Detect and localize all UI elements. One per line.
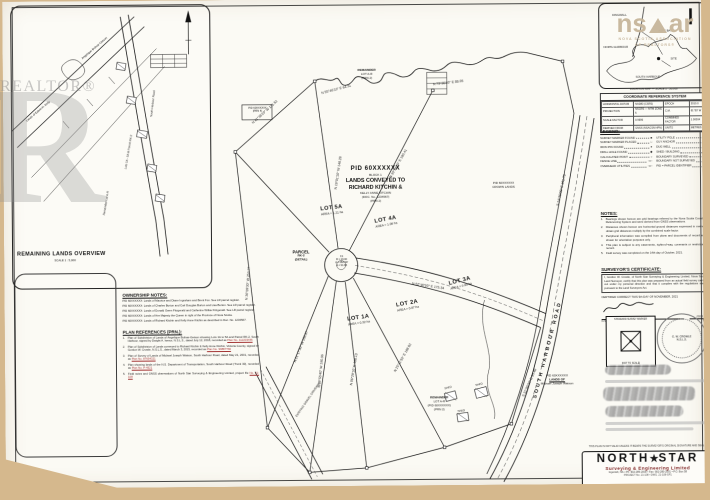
photo-background: REMAINING LANDS OVERVIEW SCALE 1 : 5,000… [0, 0, 710, 500]
crown-lands-label: PID 60XXXXXXCROWN LANDS [482, 182, 526, 190]
main-parcel-lines [235, 52, 577, 476]
ownership-note-item: PID 60XXXXXX: Lands of Richard Kitchin a… [123, 319, 259, 324]
company-name: NORTH★STAR [583, 452, 710, 466]
ownership-notes-list: PID 60XXXXXX: Lands of Maurice and Diane… [122, 298, 258, 324]
notes-title: NOTES: [601, 210, 709, 216]
location-map-drawing [606, 6, 697, 82]
plan-reference-item: 1.Plan of Subdivision of Lands of Angeli… [123, 335, 259, 343]
company-name-right: STAR [659, 452, 699, 464]
redacted-approval-stamp [605, 365, 671, 376]
redacted-approval-stamp [605, 405, 683, 417]
legend-box: LEGEND: SURVEY MARKER FOUND■ SURVEY MARK… [600, 128, 708, 169]
note-item: 4.This plan is subject to any easements,… [601, 243, 709, 251]
location-map-caption: LOCATION MAP — SCALE 1 : 50,000 [600, 86, 708, 91]
company-name-left: NORTH [597, 453, 650, 465]
remainder-lot-bottom-label: REMAINDERLOT A-R(PID 60XXXXXX)(PRN 2) [417, 396, 461, 412]
plan-reference-item: 5.Field notes and GNSS observations of N… [123, 371, 259, 379]
notes-list: 1.Bearings shown hereon are grid bearing… [601, 217, 709, 256]
note-item: 5.Field survey was completed on the 14th… [601, 252, 709, 257]
date-label: DATE [703, 319, 710, 322]
surveyor-seal: G. W. CROWLE N.S.L.S. [657, 313, 707, 363]
plan-reference-item: 3.Plan of Survey of Lands of Michael Jos… [123, 353, 259, 361]
inset-subtitle: SCALE 1 : 5,000 [17, 258, 113, 263]
culdesac-curve-data: C1R = 20.00Δ = 262°40'A = 91.63 [329, 255, 354, 268]
inset-map-lines [8, 10, 193, 257]
north-arrow-icon [185, 10, 191, 54]
plan-reference-item: 2.Plan of Subdivision of Lands conveyed … [123, 344, 259, 352]
note-item: 3.Peripheral information was compiled fr… [601, 234, 709, 242]
star-icon: ★ [650, 454, 659, 465]
seal-title: N.S.L.S. [677, 338, 687, 341]
title-block: NORTH★STAR Surveying & Engineering Limit… [582, 450, 710, 492]
legend-title: LEGEND: [600, 128, 708, 134]
coordinate-reference-box: COORDINATE REFERENCE SYSTEM HORIZONTAL D… [600, 92, 710, 133]
plan-reference-item: 4.Plan showing lands of the N.S. Departm… [123, 362, 259, 370]
project-number: PROJECT No. 21-108 • DWG. 21-108-SP1 [583, 473, 710, 477]
left-notes-block: OWNERSHIP NOTES: PID 60XXXXXX: Lands of … [122, 292, 259, 382]
certificate-title: SURVEYOR'S CERTIFICATE: [601, 266, 709, 272]
certificate-body: I, Gordon W. Crowle, of North Star Surve… [601, 273, 709, 293]
block-owner-label: PID 60XXXXXXBLOCK 1LANDS CONVEYED TORICH… [331, 164, 419, 203]
stamp-top-label: STANDARD SURVEY MARKER [614, 318, 647, 320]
certificate-box: SURVEYOR'S CERTIFICATE: I, Gordon W. Cro… [601, 266, 709, 322]
plan-references-list: 1.Plan of Subdivision of Lands of Angeli… [123, 335, 259, 380]
inset-title: REMAINING LANDS OVERVIEW [17, 251, 106, 258]
notes-box: NOTES: 1.Bearings shown hereon are grid … [601, 210, 709, 257]
monument-stamp: STANDARD SURVEY MARKER (NOT TO SCALE) [606, 316, 656, 367]
legend-item: PID = PARCEL IDENTIFIER [656, 163, 708, 168]
certificate-statement: CERTIFIED CORRECT THIS 9th DAY OF NOVEMB… [601, 294, 709, 299]
monument-icon [618, 329, 644, 353]
redacted-approval-stamp [603, 386, 695, 401]
legend-item: OVERHEAD UTILITIES–o– [600, 164, 652, 169]
monument-symbols [233, 60, 567, 474]
legend-column-1: SURVEY MARKER FOUND■ SURVEY MARKER PLACE… [600, 135, 652, 169]
signature-icon [601, 299, 657, 313]
legend-column-2: UTILITY POLE⊙ GUY ANCHOR↙ DUG WELL◉ SHED… [656, 135, 708, 169]
parcel-rk2-label: PARCELRK-2(DETAIL) [286, 249, 316, 262]
survey-plan-sheet: REMAINING LANDS OVERVIEW SCALE 1 : 5,000… [2, 0, 705, 489]
crs-table: HORIZONTAL DATUMNAD83 (CSRS)EPOCH2010.0 … [601, 101, 708, 132]
remainder-lot-top-label: REMAINDERLOT A-R(PRN 2) [347, 69, 387, 81]
